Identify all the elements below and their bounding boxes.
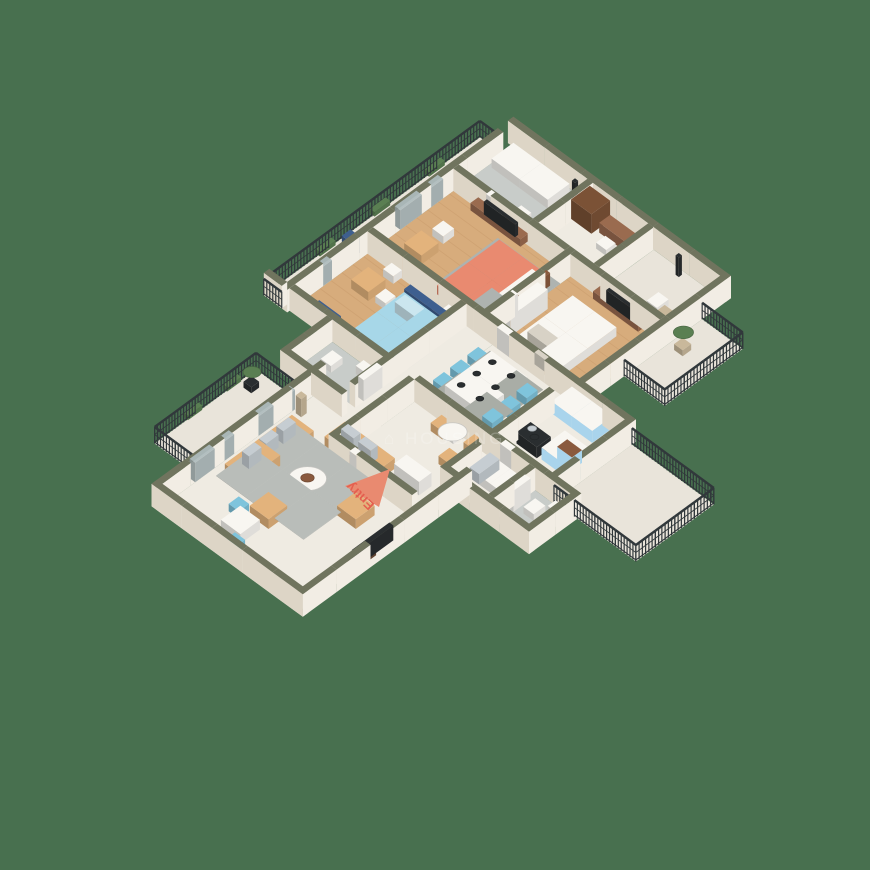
pot: [530, 434, 539, 440]
glass-door-south-face: [395, 206, 401, 230]
plate: [507, 373, 515, 378]
wall-east-face: [342, 391, 348, 418]
shower-fixture: [676, 253, 682, 277]
master-tv-east-face: [515, 222, 518, 237]
floor-lamp: [296, 391, 307, 417]
floorplan-stage: ⌂ HOUSING Entry: [0, 0, 870, 870]
wall-east-face: [282, 282, 288, 309]
shower-fixture-east-face: [679, 255, 682, 277]
plate: [492, 385, 500, 390]
pot: [528, 426, 537, 432]
plate: [476, 396, 484, 401]
coffee-table-decor: [301, 474, 314, 482]
wall-east-face: [303, 590, 309, 617]
wall-south-face: [524, 528, 530, 555]
plate: [457, 382, 465, 387]
plant: [673, 326, 693, 339]
isometric-floorplan: ⌂ HOUSING Entry: [0, 0, 870, 870]
plate: [473, 371, 481, 376]
watermark: ⌂ HOUSING: [384, 429, 505, 448]
wall-south-face: [350, 381, 356, 408]
balcony-plant: [243, 366, 261, 377]
door-south-face: [358, 376, 363, 401]
shower-fixture-south-face: [676, 255, 679, 277]
plate: [488, 360, 496, 365]
